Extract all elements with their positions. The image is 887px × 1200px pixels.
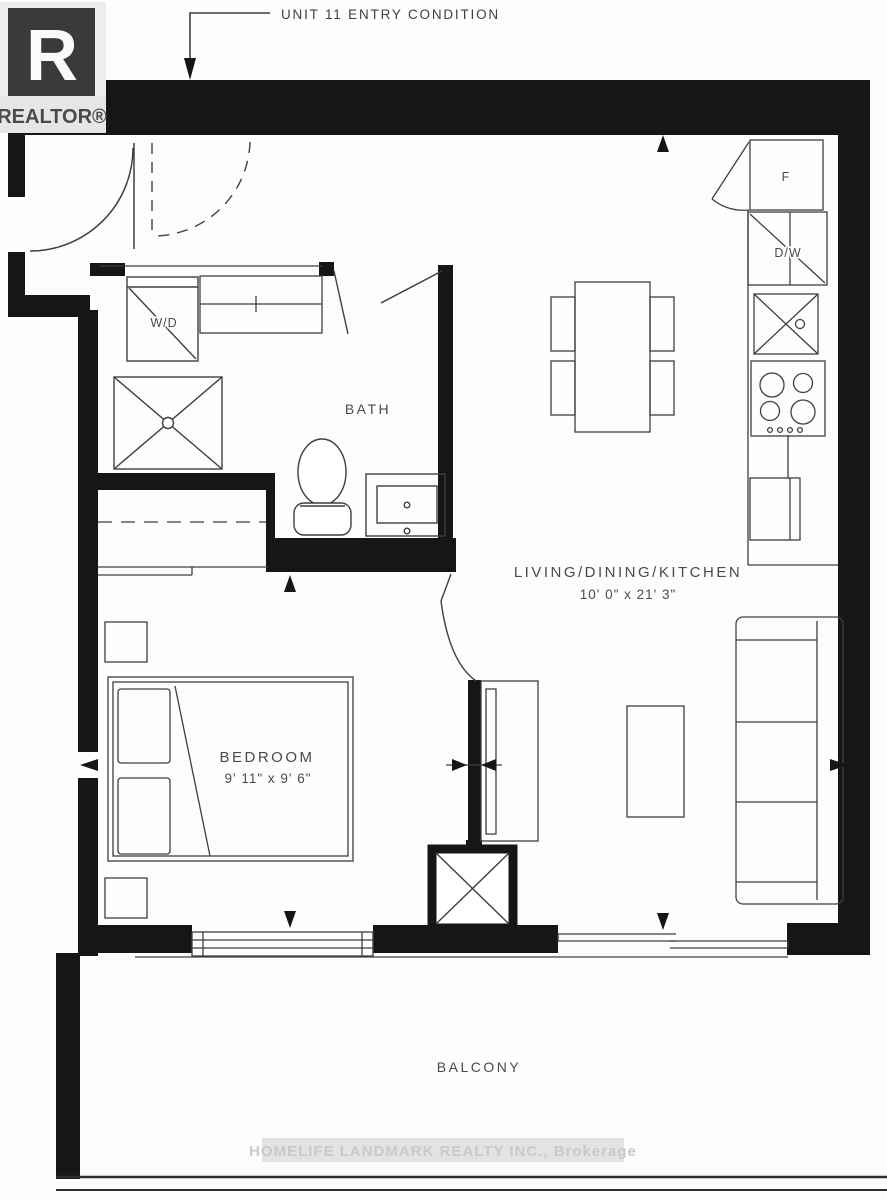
cooktop — [751, 361, 825, 436]
entry-door-alt-dashed — [152, 142, 250, 236]
bath-label: BATH — [345, 401, 391, 417]
unit-entry-label: UNIT 11 ENTRY CONDITION — [281, 7, 500, 22]
living-label: LIVING/DINING/KITCHEN — [514, 564, 742, 581]
nightstands — [105, 622, 147, 918]
marker-arrows — [80, 135, 848, 930]
exterior-walls — [8, 80, 870, 1179]
balcony-railing — [56, 1177, 887, 1190]
bedroom-door — [441, 574, 476, 681]
entry-door — [30, 143, 134, 251]
brokerage-watermark: HOMELIFE LANDMARK REALTY INC., Brokerage — [249, 1138, 637, 1162]
realtor-wordmark: REALTOR® — [0, 106, 107, 128]
unit-entry-annotation: UNIT 11 ENTRY CONDITION — [184, 7, 500, 80]
floor-plan-page: UNIT 11 ENTRY CONDITION R REALTOR® W/D F… — [0, 0, 887, 1200]
balcony-label: BALCONY — [437, 1059, 521, 1075]
washer-dryer-label: W/D — [150, 316, 177, 330]
brokerage-text: HOMELIFE LANDMARK REALTY INC., Brokerage — [249, 1143, 637, 1160]
bedroom-window — [192, 932, 373, 956]
bed — [108, 677, 353, 861]
toilet — [294, 439, 351, 535]
tv-console — [481, 681, 538, 841]
floor-plan-svg: UNIT 11 ENTRY CONDITION R REALTOR® W/D F… — [0, 0, 887, 1200]
entry-cabinet — [100, 266, 322, 333]
realtor-logo-r: R — [26, 16, 78, 96]
linen-closet — [98, 522, 268, 575]
fridge — [712, 140, 823, 210]
realtor-watermark: R REALTOR® — [0, 2, 107, 133]
bedroom-label: BEDROOM — [219, 749, 314, 766]
living-dims: 10' 0" x 21' 3" — [580, 587, 677, 602]
bedroom-dims: 9' 11" x 9' 6" — [224, 771, 311, 786]
kitchen-sink — [754, 294, 818, 354]
dining-table — [551, 282, 674, 432]
kitchen-lower-cabinet — [750, 478, 800, 540]
shower — [114, 377, 222, 469]
balcony-slider — [558, 934, 788, 948]
bath-door-leaf — [381, 271, 442, 303]
coffee-table — [627, 706, 684, 817]
down-arrow-icon — [184, 58, 196, 80]
closet-door-line — [334, 271, 348, 334]
sofa — [736, 617, 843, 904]
fridge-label: F — [782, 170, 791, 184]
dishwasher-label: D/W — [774, 246, 801, 260]
vanity-sink — [366, 474, 445, 536]
shaft-column — [432, 849, 513, 928]
